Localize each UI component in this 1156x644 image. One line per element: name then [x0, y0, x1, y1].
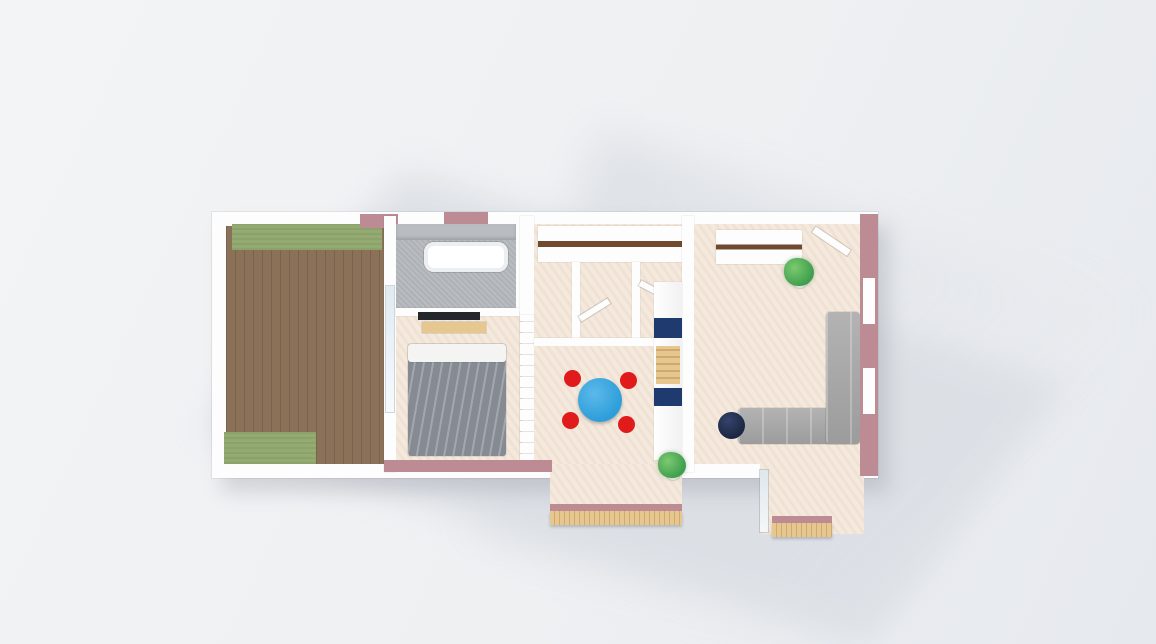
tv-wood-shelf: [422, 322, 486, 333]
glass-sliding-door: [386, 286, 394, 412]
dining-table-blue: [578, 378, 622, 422]
dining-chair-red-2: [620, 372, 637, 389]
balcony-right-glass-rail: [760, 470, 768, 532]
kitchen-wood-slat-front: [656, 346, 680, 384]
sofa-right-arm: [826, 312, 860, 444]
wall-kitchen-living: [682, 216, 694, 472]
render-stage: [0, 0, 1156, 644]
balcony-plant: [658, 452, 686, 478]
hallway-partition-1: [572, 262, 580, 342]
hallway-partition-2: [632, 262, 640, 342]
kitchen-navy-front-2: [654, 388, 682, 406]
bed-pillows: [408, 344, 506, 362]
bathroom-stone-wall: [396, 224, 516, 240]
navy-pouf-chair: [718, 412, 745, 439]
facade-accent-right-wall: [860, 214, 878, 476]
kitchen-navy-front-1: [654, 318, 682, 338]
terrace-wood-deck: [226, 226, 386, 464]
bathtub: [424, 242, 508, 272]
facade-accent-bathroom: [444, 212, 488, 224]
hallway-wardrobe-brown-stripe: [538, 226, 682, 262]
wall-tv: [418, 312, 480, 320]
open-shelving-divider: [520, 312, 534, 464]
right-facade-window-2: [863, 368, 875, 414]
dining-chair-red-3: [562, 412, 579, 429]
wall-bedroom-hallway: [520, 216, 534, 314]
balcony-middle-slat-screen: [550, 511, 682, 525]
facade-accent-front-band: [384, 460, 552, 472]
apartment-floorplan: [220, 220, 870, 470]
right-facade-window-1: [863, 278, 875, 324]
balcony-right-slat-screen: [772, 523, 832, 537]
dining-chair-red-4: [618, 416, 635, 433]
dining-chair-red-1: [564, 370, 581, 387]
terrace-grass-planter-front: [224, 432, 316, 464]
entry-plant: [784, 258, 814, 286]
